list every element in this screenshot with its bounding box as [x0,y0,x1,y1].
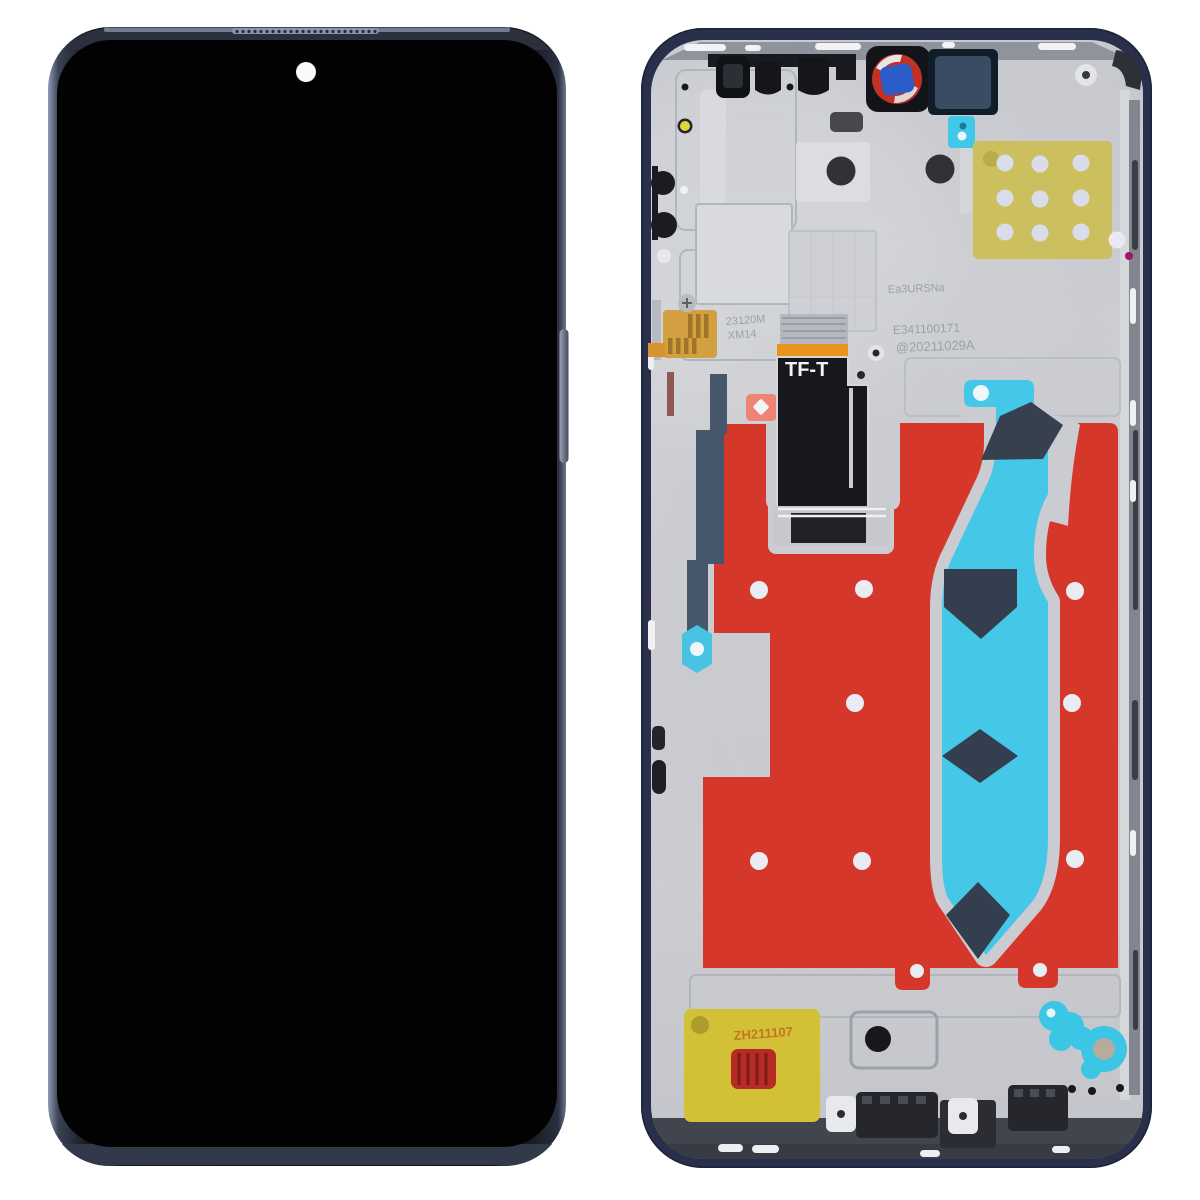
svg-text:E341100171: E341100171 [893,321,961,337]
svg-text:Ea3URSNa: Ea3URSNa [888,282,946,296]
svg-text:@20211029A: @20211029A [896,337,976,355]
svg-text:XM14: XM14 [727,328,757,342]
svg-text:TF-T: TF-T [785,359,828,381]
